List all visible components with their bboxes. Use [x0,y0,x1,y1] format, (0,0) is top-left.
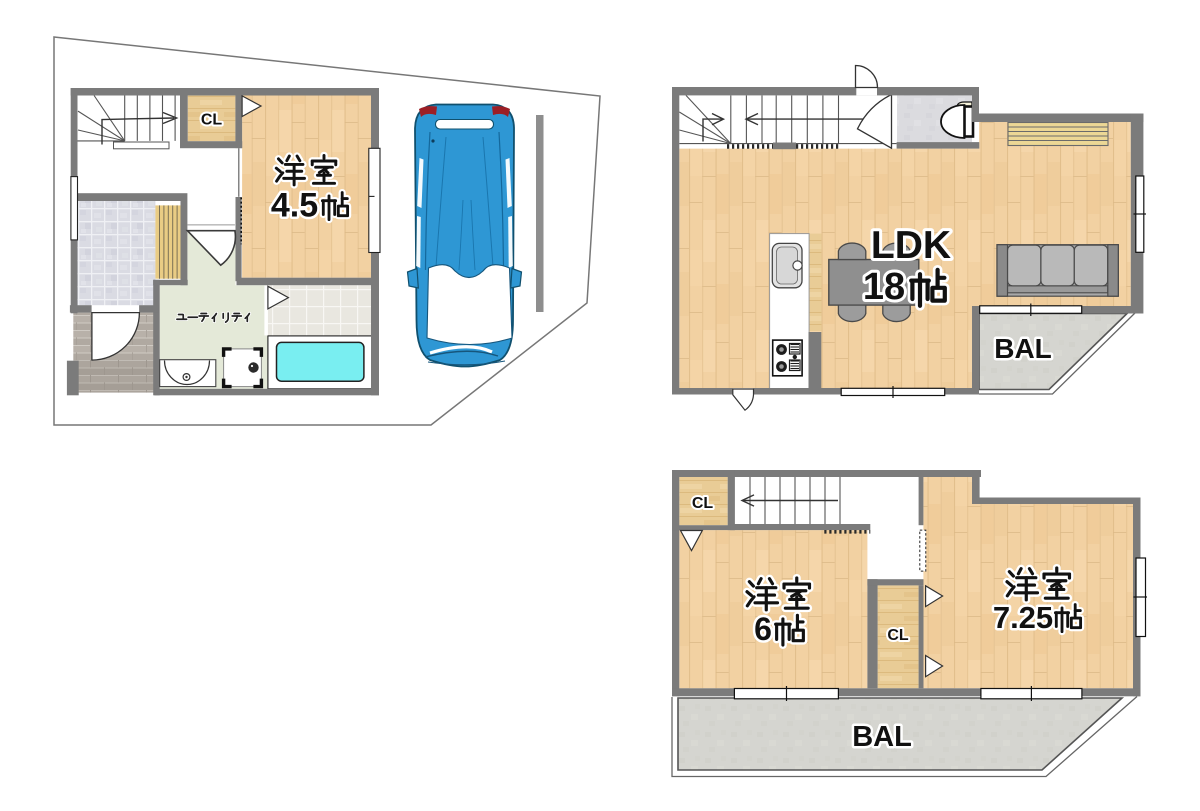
svg-text:CL: CL [692,495,714,512]
svg-text:LDK: LDK [871,224,951,267]
svg-text:4.5: 4.5 [271,187,318,225]
svg-text:7.25: 7.25 [993,600,1053,635]
svg-text:BAL: BAL [852,721,912,753]
svg-text:CL: CL [201,112,223,129]
svg-text:BAL: BAL [994,333,1052,364]
svg-text:18: 18 [863,266,905,308]
svg-text:CL: CL [887,627,909,644]
svg-text:6: 6 [754,611,772,647]
